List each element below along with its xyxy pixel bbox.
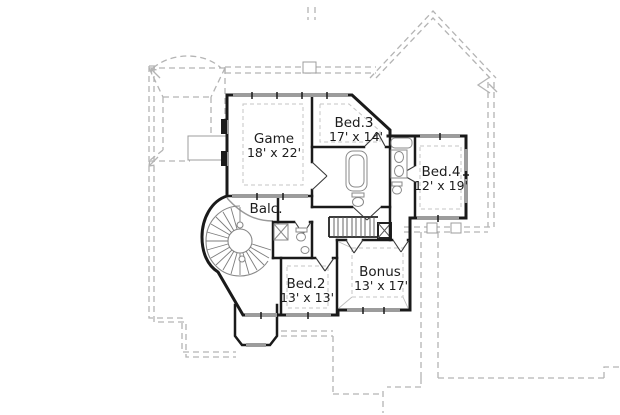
spiral-newel-knob-bottom [239, 256, 245, 262]
right-roof-tick [489, 84, 497, 92]
bottom-right-roof-dashes [383, 367, 620, 413]
right-roof-edge-line [488, 82, 494, 227]
floor-plan-canvas: Game 18' x 22' Bed.3 17' x 14' Bed.4 12'… [0, 0, 620, 415]
bottom-bay-roof-dashes [281, 331, 383, 394]
roof-outlines [149, 7, 620, 413]
turret-dormer-box [188, 136, 226, 160]
spiral-newel-knob-top [237, 222, 243, 228]
room-label-balc: Balc. [250, 201, 283, 217]
room-dims-game: 18' x 22' [247, 145, 301, 160]
toilet-bowl-shape-3 [297, 233, 306, 241]
straight-staircase [329, 217, 391, 238]
band-ornament-box [303, 62, 316, 73]
window-box-upper [221, 119, 227, 134]
toilet-tank-shape-3 [296, 228, 307, 232]
toilet-bowl-shape-2 [393, 186, 402, 194]
toilet-bowl-shape [353, 198, 364, 207]
rear-deck-roof-dashes [404, 227, 494, 378]
deck-post-box-2 [451, 223, 461, 233]
window-box-lower [221, 151, 227, 166]
room-dims-bonus: 13' x 17' [354, 278, 408, 293]
bathtub2-shape [391, 138, 412, 148]
sink-basin-shape-3 [301, 247, 309, 254]
floor-plan-svg: Game 18' x 22' Bed.3 17' x 14' Bed.4 12'… [0, 0, 620, 415]
room-dims-bed4: 12' x 19' [414, 178, 468, 193]
room-dims-bed2: 13' x 13' [280, 290, 334, 305]
toilet-tank-shape [352, 193, 364, 197]
gable-roof-outline [370, 11, 496, 78]
sink-basin-shape [395, 152, 404, 163]
deck-post-box [427, 223, 437, 233]
stair-treads [334, 217, 374, 237]
room-dims-bed3: 17' x 14' [329, 129, 383, 144]
bathtub-inner-shape [349, 155, 364, 187]
toilet-tank-shape-2 [392, 182, 402, 186]
top-roof-band [225, 7, 376, 73]
left-roof-edge-line [149, 66, 236, 357]
stair-rails [329, 217, 378, 237]
sink-basin-shape-2 [395, 166, 404, 177]
